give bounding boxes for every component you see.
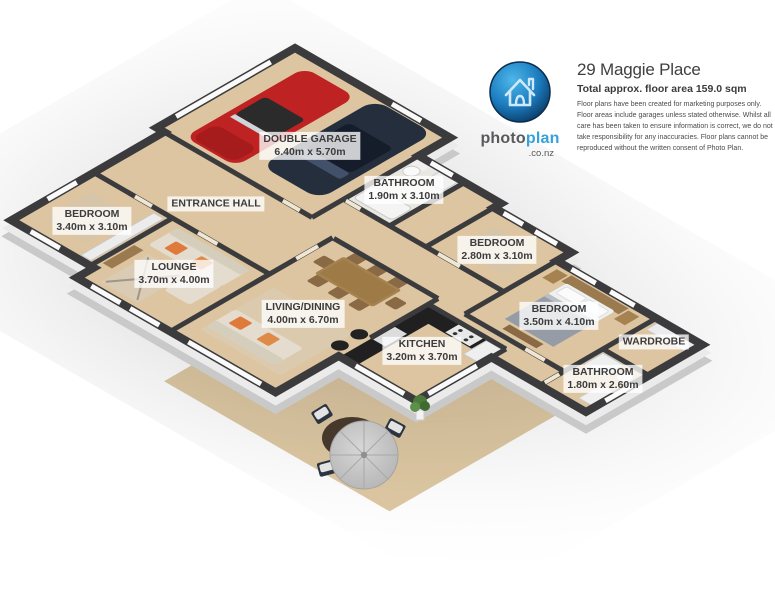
photoplan-logo: photoplan .co.nz — [478, 60, 562, 159]
page-title: 29 Maggie Place — [577, 60, 775, 80]
brand-plan: plan — [526, 130, 560, 147]
floorplan-page: photoplan .co.nz 29 Maggie Place Total a… — [0, 0, 775, 600]
floor-area-subtitle: Total approx. floor area 159.0 sqm — [577, 83, 775, 95]
brand-photo: photo — [480, 130, 525, 147]
title-block: photoplan .co.nz 29 Maggie Place Total a… — [478, 60, 773, 166]
disclaimer-text: Floor plans have been created for market… — [577, 99, 775, 155]
house-icon — [488, 60, 552, 124]
patio-umbrella — [330, 421, 398, 489]
brand-wordmark: photoplan — [478, 131, 562, 147]
brand-suffix: .co.nz — [478, 148, 562, 159]
